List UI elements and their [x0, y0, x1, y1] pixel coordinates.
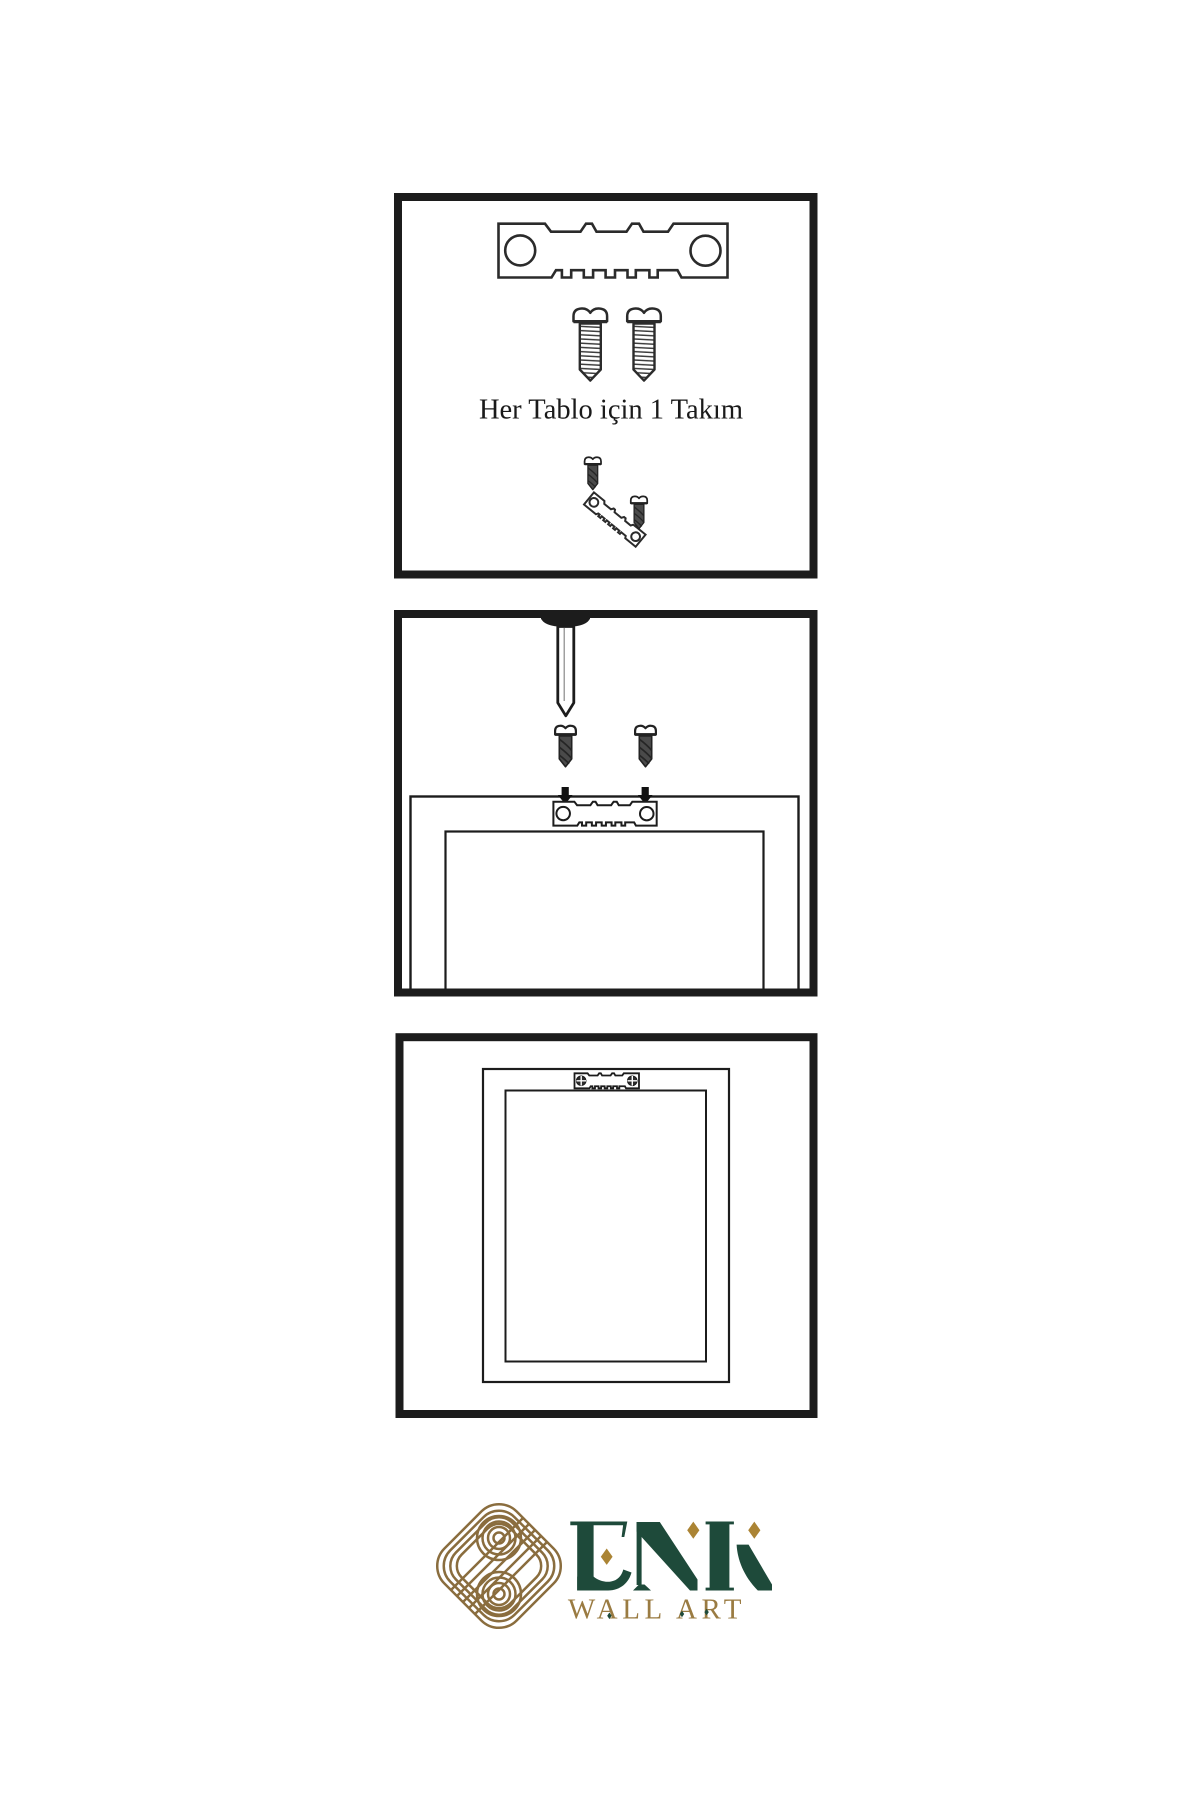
- svg-text:WALL ART: WALL ART: [568, 1594, 746, 1626]
- svg-text:Her Tablo için 1 Takım: Her Tablo için 1 Takım: [479, 395, 743, 426]
